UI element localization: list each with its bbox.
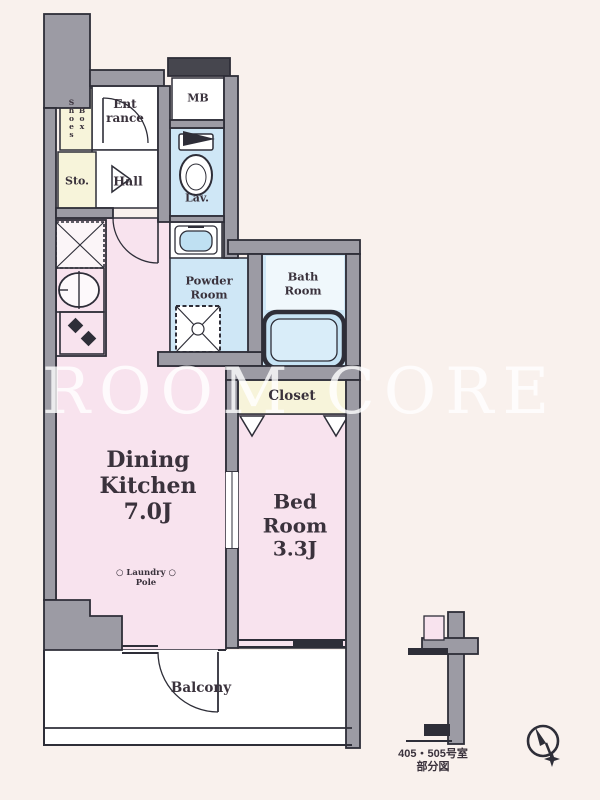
partial-diagram — [406, 612, 478, 744]
laundry-pole-label: ○ Laundry ○ Pole — [116, 568, 176, 588]
bed-room-label: Bed Room 3.3J — [263, 491, 327, 562]
lavatory-label: Lav. — [185, 193, 209, 206]
balcony-label: Balcony — [171, 681, 231, 697]
hall-label: Hall — [113, 175, 142, 190]
sink-icon — [175, 226, 217, 254]
balcony-area — [44, 650, 346, 745]
floorplan-canvas: ROOM CORE Shoes Box Ent rance MB Sto. Ha… — [0, 0, 600, 800]
shoes-box-label: Shoes Box — [66, 98, 87, 138]
refrigerator-icon — [56, 222, 104, 268]
toilet-icon — [179, 131, 215, 195]
meter-box-label: MB — [187, 93, 208, 106]
dining-kitchen-label: Dining Kitchen 7.0J — [99, 448, 196, 526]
powder-room-label: Powder Room — [185, 274, 232, 301]
partial-diagram-caption: 405・505号室 部分図 — [398, 748, 468, 774]
storage-label: Sto. — [65, 176, 89, 189]
compass-icon — [528, 726, 560, 767]
washing-machine-icon — [176, 306, 220, 352]
closet-label: Closet — [268, 389, 315, 405]
bath-room-label: Bath Room — [284, 270, 321, 297]
entrance-label: Ent rance — [106, 97, 144, 125]
